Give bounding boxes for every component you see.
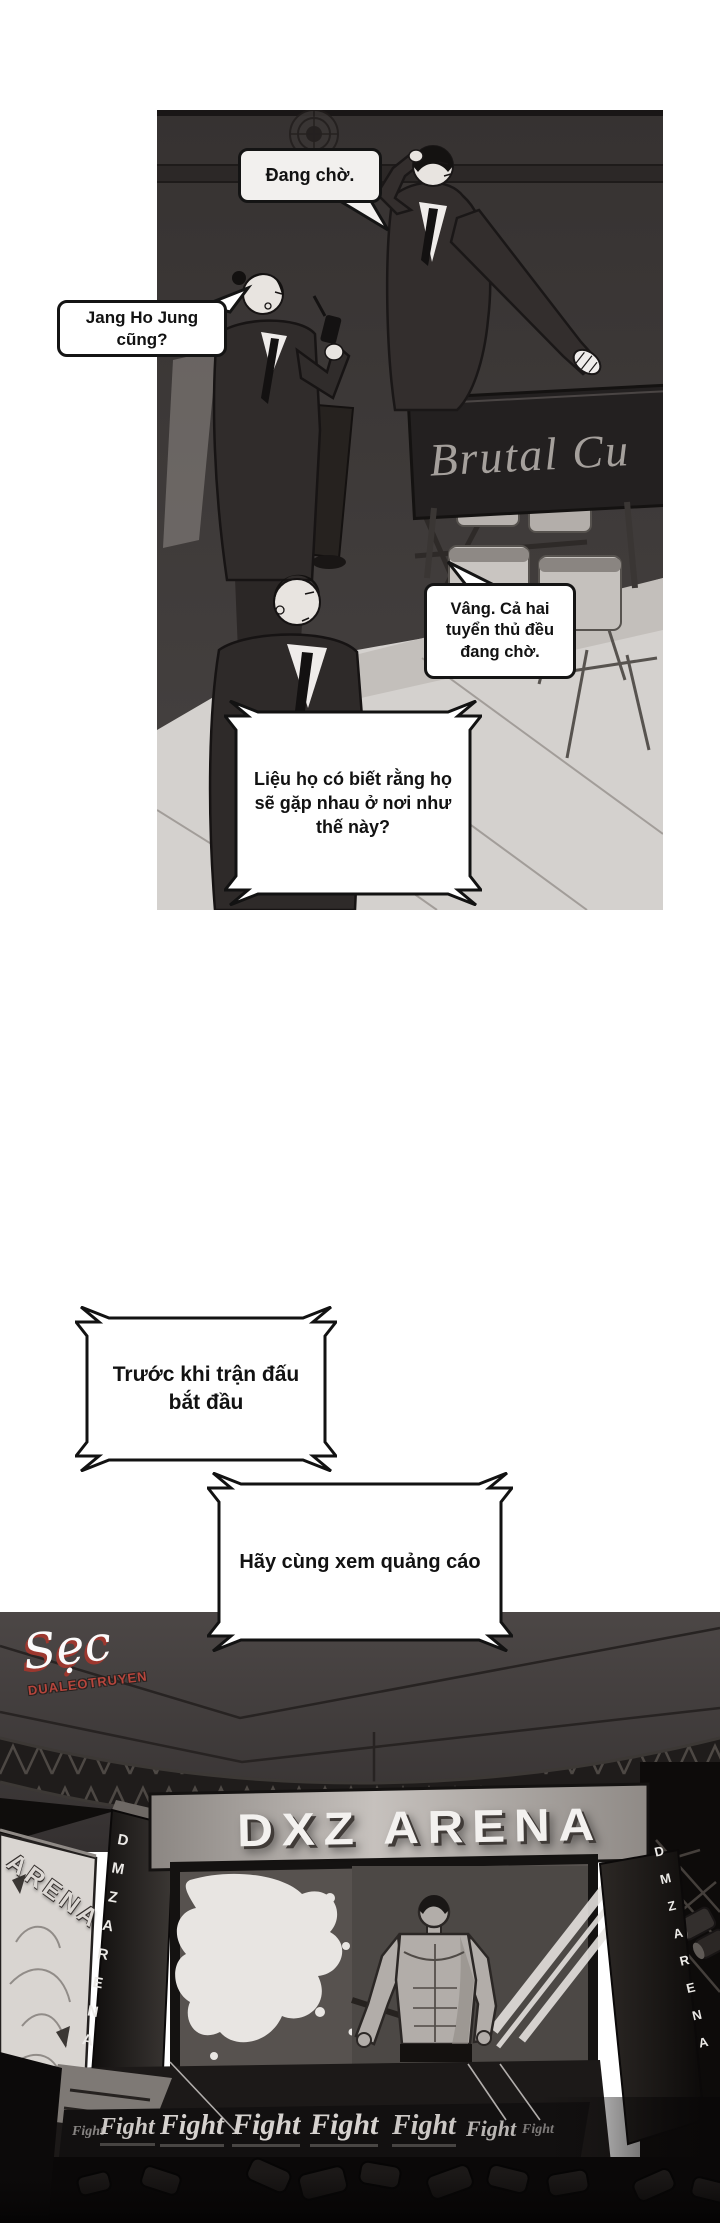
narration-box-ads: Hãy cùng xem quảng cáo: [207, 1472, 513, 1652]
panel-backstage: Brutal Cu: [157, 110, 663, 910]
fight-caption-bar: [310, 2144, 378, 2147]
webtoon-page: Brutal Cu: [0, 0, 720, 2223]
fight-word: Fight: [232, 2108, 300, 2147]
fight-caption-bar: [160, 2144, 224, 2147]
narration-text: Hãy cùng xem quảng cáo: [207, 1472, 513, 1652]
narration-text: Trước khi trận đấu bắt đầu: [75, 1306, 337, 1472]
speech-bubble-question: Jang Ho Jung cũng?: [57, 300, 227, 357]
fight-word: Fight: [522, 2122, 554, 2138]
fight-caption-bar: [100, 2143, 155, 2146]
bubble-text: Vâng. Cả hai tuyển thủ đều đang chờ.: [439, 599, 561, 662]
bubble-text: Jang Ho Jung cũng?: [60, 307, 224, 351]
speech-bubble-answer: Vâng. Cả hai tuyển thủ đều đang chờ.: [424, 583, 576, 679]
fight-word: Fight: [100, 2114, 155, 2146]
jumbotron-title: DXZ ARENA: [160, 1795, 679, 1858]
fight-caption-bar: [232, 2144, 300, 2147]
thought-text: Liệu họ có biết rằng họ sẽ gặp nhau ở nơ…: [224, 700, 482, 906]
speech-bubble-waiting: Đang chờ.: [238, 148, 382, 203]
narration-box-before-match: Trước khi trận đấu bắt đầu: [75, 1306, 337, 1472]
fight-caption-bar: [392, 2144, 456, 2147]
sign-brutal-cup-text: Brutal Cu: [428, 424, 631, 485]
fight-word: Fight: [392, 2110, 456, 2147]
fight-word: Fight: [310, 2108, 378, 2147]
fight-word: Fight: [466, 2116, 516, 2142]
thought-box: Liệu họ có biết rằng họ sẽ gặp nhau ở nơ…: [224, 700, 482, 906]
translator-logo: Sẹc DUALEOTRUYEN: [20, 1611, 148, 1698]
bubble-text: Đang chờ.: [266, 164, 355, 187]
fight-word: Fight: [160, 2110, 224, 2147]
